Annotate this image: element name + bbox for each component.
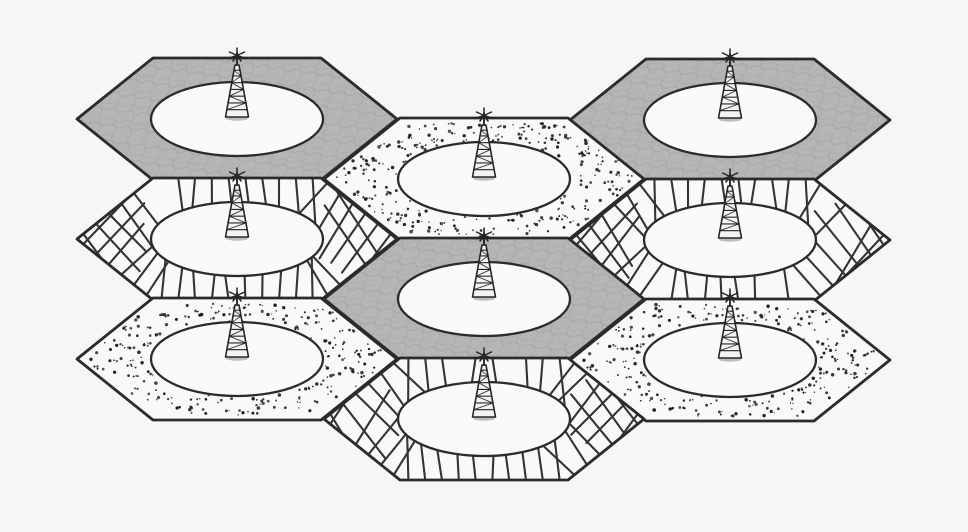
- diagram-canvas: [0, 0, 968, 532]
- cellular-network-diagram: [0, 0, 968, 532]
